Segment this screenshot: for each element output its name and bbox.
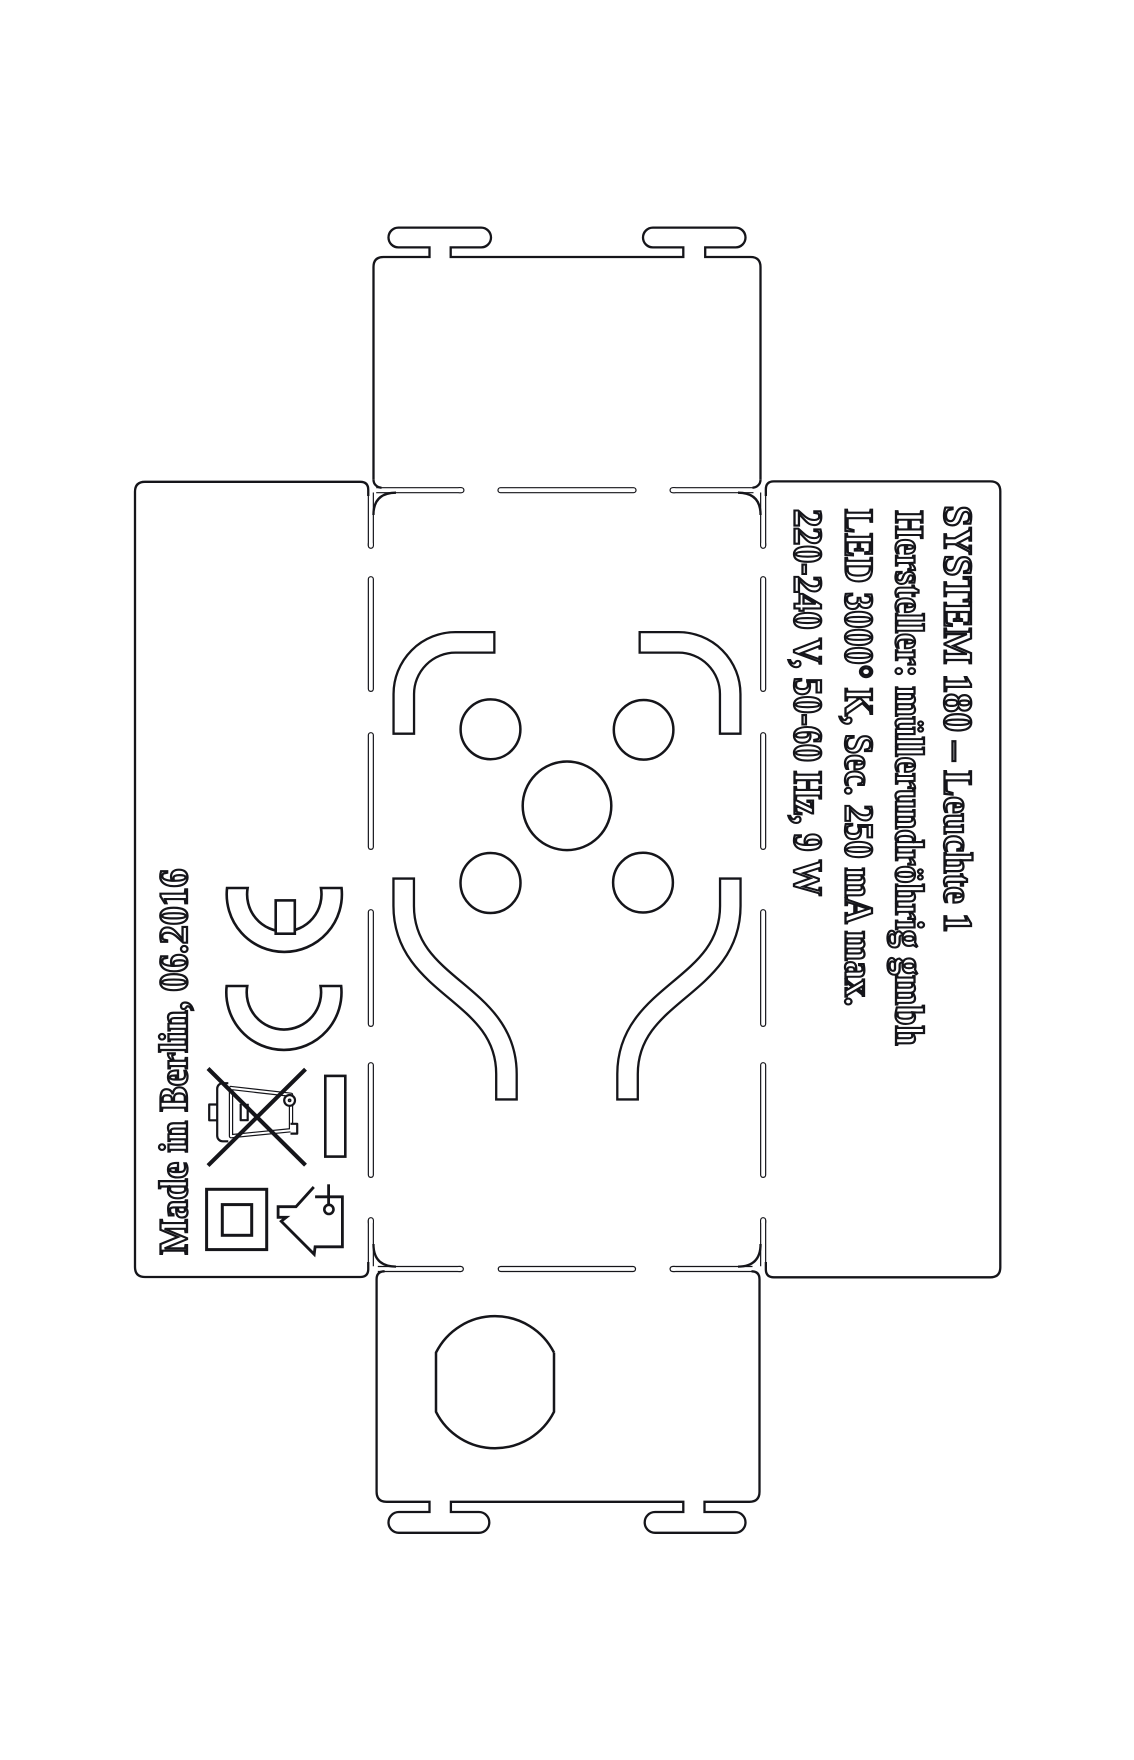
svg-text:Hersteller: müllerundröhrig gm: Hersteller: müllerundröhrig gmbh [887,511,932,1046]
svg-text:LED 3000° K, Sec. 250 mA max.: LED 3000° K, Sec. 250 mA max. [836,509,881,1006]
svg-text:220-240 V, 50-60 Hz, 9 W: 220-240 V, 50-60 Hz, 9 W [786,509,831,896]
svg-text:Made in Berlin, 06.2016: Made in Berlin, 06.2016 [151,869,196,1255]
svg-text:SYSTEM 180 – Leuchte 1: SYSTEM 180 – Leuchte 1 [936,506,981,933]
